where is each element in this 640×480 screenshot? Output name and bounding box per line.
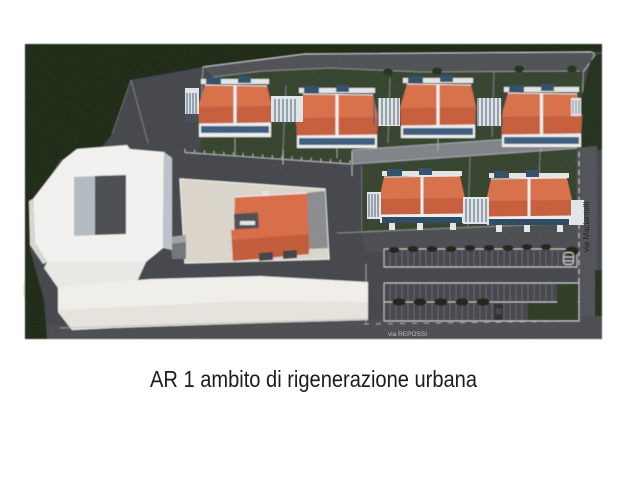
svg-text:AR 1 ambito di rigenerazione u: AR 1 ambito di rigenerazione urbana (150, 366, 477, 392)
